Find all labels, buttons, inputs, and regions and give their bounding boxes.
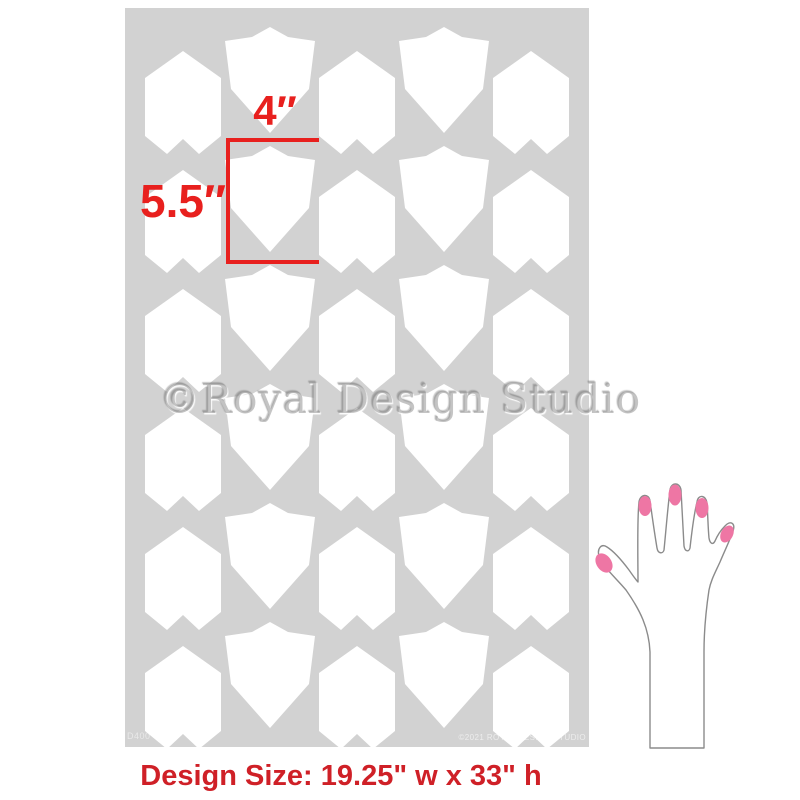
stencil-shape-shield: [399, 503, 489, 609]
stencil-shape-arrow: [145, 527, 221, 630]
stencil-shape-arrow: [319, 51, 395, 154]
stencil-shape-shield: [225, 622, 315, 728]
stencil-shape-shield: [399, 146, 489, 252]
index-nail: [639, 496, 652, 516]
stencil-shape-shield: [225, 146, 315, 252]
stencil-shape-arrow: [493, 408, 569, 511]
measurement-bracket-bottom-line: [226, 260, 319, 264]
middle-nail: [669, 485, 682, 506]
stencil-shape-arrow: [493, 527, 569, 630]
ring-nail: [696, 498, 709, 518]
stencil-shape-arrow: [319, 527, 395, 630]
hand-scale-illustration: [592, 470, 742, 750]
stencil-sku: D400: [127, 731, 151, 741]
stencil-shape-arrow: [319, 170, 395, 273]
stencil-shape-arrow: [493, 51, 569, 154]
stencil-shape-arrow: [145, 408, 221, 511]
stencil-shape-shield: [399, 265, 489, 371]
stencil-shape-arrow: [145, 646, 221, 747]
stencil-shape-shield: [225, 503, 315, 609]
stencil-shape-shield: [225, 265, 315, 371]
measurement-bracket-top-line: [226, 138, 319, 142]
watermark-text: ©Royal Design Studio: [0, 375, 800, 423]
stencil-shape-arrow: [319, 408, 395, 511]
stencil-shape-arrow: [493, 646, 569, 747]
design-size-label: Design Size: 19.25" w x 33" h: [0, 760, 682, 793]
stencil-shape-arrow: [145, 51, 221, 154]
hand-outline: [598, 484, 733, 748]
height-measurement-label: 5.5″: [140, 178, 223, 224]
stencil-shape-shield: [399, 27, 489, 133]
stencil-shape-arrow: [493, 170, 569, 273]
width-measurement-label: 4″: [243, 90, 307, 132]
stencil-product-image: D400 ©2021 ROYAL DESIGN STUDIO ©Royal De…: [0, 0, 800, 800]
measurement-bracket-left-line: [226, 138, 230, 264]
stencil-shape-arrow: [319, 646, 395, 747]
stencil-shape-shield: [399, 622, 489, 728]
stencil-copyright-text: ©2021 ROYAL DESIGN STUDIO: [450, 733, 586, 742]
